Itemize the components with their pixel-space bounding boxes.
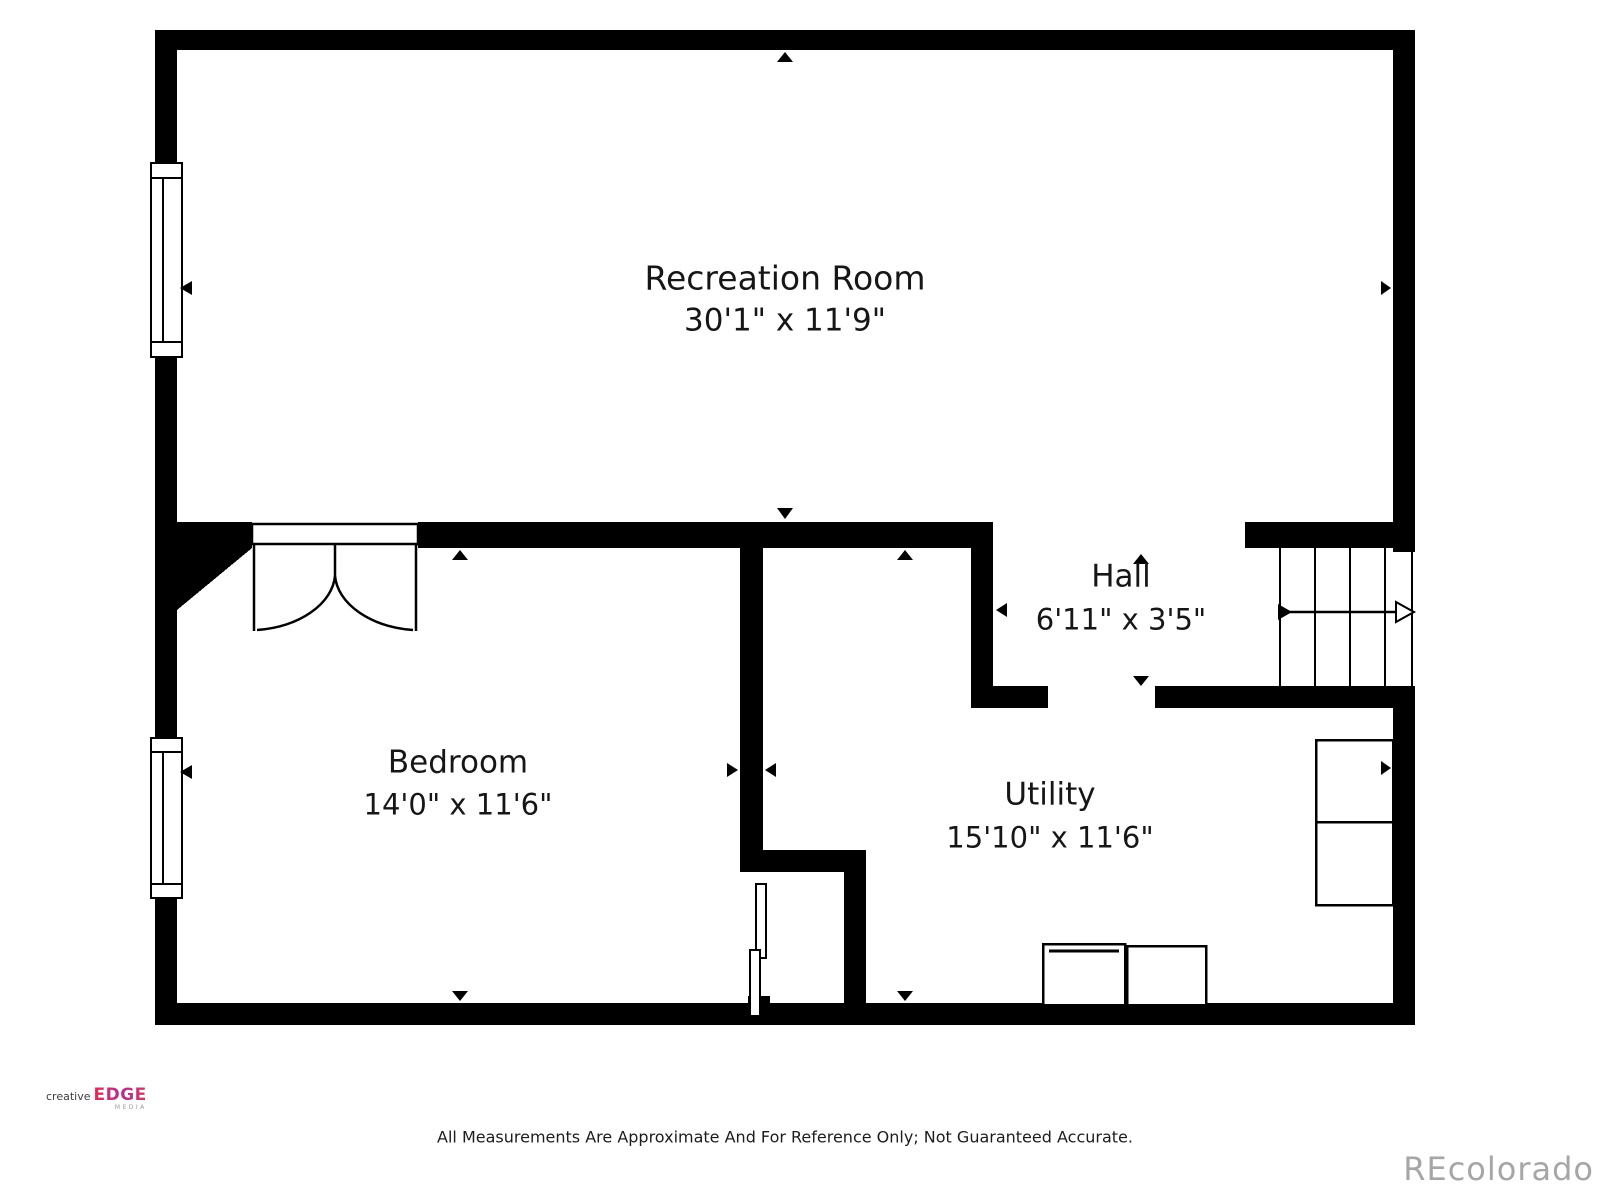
arrow-utility-top	[897, 550, 913, 560]
wall-left-upper	[155, 30, 177, 163]
recolorado-watermark: REcolorado	[1403, 1150, 1594, 1188]
double-door-icon	[252, 524, 418, 631]
wall-stair-top	[1245, 522, 1415, 548]
stair-arrow-start	[1278, 604, 1292, 620]
wall-bottom	[155, 1003, 1415, 1025]
arrow-bedroom-right	[727, 763, 738, 777]
wall-top	[155, 30, 1415, 50]
logo-edge-text: EDGE	[93, 1085, 146, 1105]
arrow-hall-bottom	[1133, 676, 1149, 686]
logo-creative-text: creative	[46, 1090, 90, 1103]
bedroom-dimensions: 14'0" x 11'6"	[364, 791, 553, 820]
logo-media-text: MEDIA	[115, 1104, 147, 1111]
wall-right-lower	[1393, 686, 1415, 1025]
wall-bedroom-diagonal-corner	[177, 548, 252, 610]
recreation-room-label: Recreation Room	[645, 262, 926, 295]
hall-dimensions: 6'11" x 3'5"	[1036, 606, 1206, 635]
wall-closet-right	[844, 850, 866, 1025]
wall-right-upper	[1393, 30, 1415, 552]
wall-hall-left	[971, 548, 993, 708]
logo-edge-wrap: EDGE MEDIA	[93, 1085, 146, 1111]
stairs-icon	[1280, 548, 1412, 686]
stair-direction-arrow	[1278, 602, 1414, 622]
arrow-utility-left	[765, 763, 776, 777]
window-icon	[151, 738, 182, 898]
arrow-bedroom-top	[452, 550, 468, 560]
window-icon	[151, 163, 182, 357]
recreation-room-dimensions: 30'1" x 11'9"	[684, 306, 886, 337]
bedroom-label: Bedroom	[388, 748, 528, 779]
arrow-recreation-bottom	[777, 508, 793, 519]
arrow-bedroom-bottom	[452, 991, 468, 1001]
creative-edge-media-logo: creative EDGE MEDIA	[46, 1085, 147, 1111]
wall-hall-bottom-left	[971, 686, 1048, 708]
floor-plan-page: Recreation Room 30'1" x 11'9" Bedroom 14…	[0, 0, 1600, 1200]
arrow-recreation-top	[777, 52, 793, 62]
wall-main-right-of-door	[418, 522, 993, 548]
arrow-hall-left	[996, 603, 1007, 617]
arrow-utility-bottom	[897, 991, 913, 1001]
side-by-side-appliance-icon	[1043, 944, 1206, 1005]
arrow-recreation-right	[1381, 281, 1391, 295]
utility-dimensions: 15'10" x 11'6"	[946, 824, 1153, 853]
wall-main-left-of-door	[155, 522, 252, 548]
wall-hall-bottom-right	[1155, 686, 1415, 708]
measurement-disclaimer: All Measurements Are Approximate And For…	[437, 1128, 1133, 1147]
floor-plan-drawing	[0, 0, 1600, 1200]
wall-bedroom-utility-divider	[740, 548, 763, 872]
hall-label: Hall	[1091, 562, 1151, 593]
utility-label: Utility	[1004, 780, 1095, 811]
